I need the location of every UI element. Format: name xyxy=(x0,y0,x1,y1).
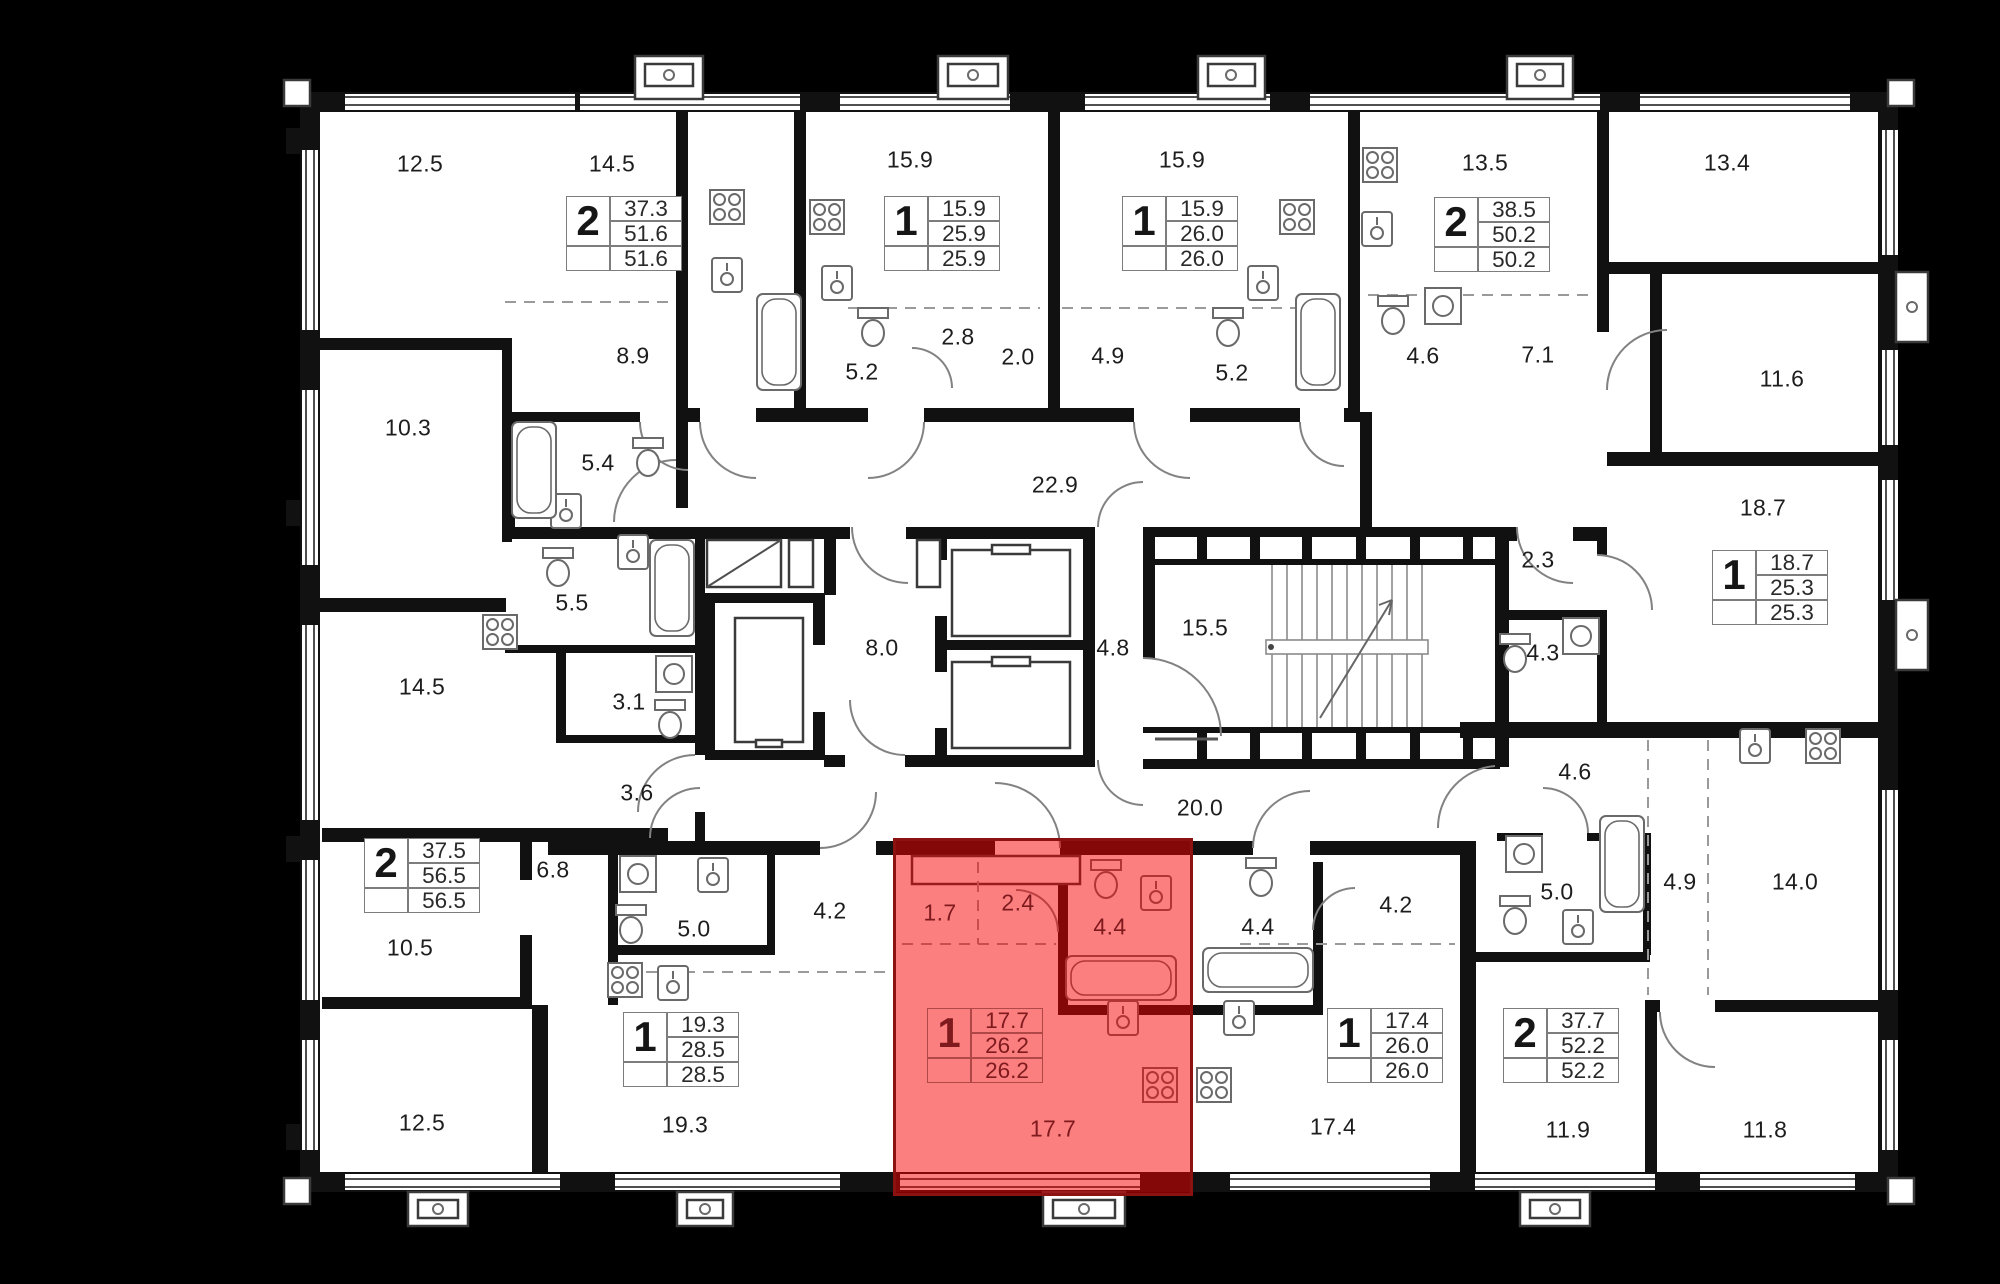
apartment-badge[interactable]: 2 38.5 50.2 50.2 xyxy=(1434,197,1550,272)
room-area-label: 4.9 xyxy=(1663,869,1696,896)
area-2: 25.3 xyxy=(1756,575,1828,600)
room-area-label-highlighted: 1.7 xyxy=(923,900,956,927)
area-2: 26.0 xyxy=(1166,221,1238,246)
room-area-label: 10.3 xyxy=(385,415,431,442)
room-area-label: 19.3 xyxy=(662,1112,708,1139)
room-area-label: 5.2 xyxy=(845,359,878,386)
area-2: 56.5 xyxy=(408,863,480,888)
total-area: 56.5 xyxy=(408,888,480,913)
room-area-label: 11.9 xyxy=(1546,1117,1591,1144)
apartment-badge[interactable]: 2 37.7 52.2 52.2 xyxy=(1503,1008,1619,1083)
floor-plan-canvas: 12.5 14.5 15.9 15.9 13.5 13.4 10.3 8.9 5… xyxy=(0,0,2000,1284)
living-area: 38.5 xyxy=(1478,197,1550,222)
living-area: 15.9 xyxy=(928,196,1000,221)
room-area-label: 14.5 xyxy=(589,151,635,178)
apartment-badge[interactable]: 1 19.3 28.5 28.5 xyxy=(623,1012,739,1087)
apartment-badge[interactable]: 1 18.7 25.3 25.3 xyxy=(1712,550,1828,625)
total-area: 26.0 xyxy=(1371,1058,1443,1083)
room-area-label: 14.5 xyxy=(399,674,445,701)
living-area: 17.7 xyxy=(971,1008,1043,1033)
room-area-label: 6.8 xyxy=(536,857,569,884)
total-area: 52.2 xyxy=(1547,1058,1619,1083)
room-area-label-highlighted: 17.7 xyxy=(1030,1116,1076,1143)
room-area-label: 5.4 xyxy=(581,450,614,477)
rooms-count: 1 xyxy=(1327,1008,1371,1058)
rooms-count: 1 xyxy=(927,1008,971,1058)
area-2: 51.6 xyxy=(610,221,682,246)
room-area-label: 15.5 xyxy=(1182,615,1228,642)
badge-empty-cell xyxy=(884,246,928,271)
apartment-badge[interactable]: 1 15.9 26.0 26.0 xyxy=(1122,196,1238,271)
room-area-label: 15.9 xyxy=(887,147,933,174)
apartment-badge[interactable]: 2 37.5 56.5 56.5 xyxy=(364,838,480,913)
room-area-label: 5.2 xyxy=(1215,360,1248,387)
apartment-badge[interactable]: 1 17.4 26.0 26.0 xyxy=(1327,1008,1443,1083)
total-area: 28.5 xyxy=(667,1062,739,1087)
area-2: 28.5 xyxy=(667,1037,739,1062)
room-area-label: 12.5 xyxy=(399,1110,445,1137)
room-area-label: 13.4 xyxy=(1704,150,1750,177)
room-area-label: 15.9 xyxy=(1159,147,1205,174)
room-area-label: 10.5 xyxy=(387,935,433,962)
total-area: 25.9 xyxy=(928,246,1000,271)
rooms-count: 2 xyxy=(364,838,408,888)
room-area-label: 12.5 xyxy=(397,151,443,178)
area-2: 25.9 xyxy=(928,221,1000,246)
room-area-label: 8.9 xyxy=(616,343,649,370)
room-area-label: 5.0 xyxy=(1540,879,1573,906)
room-area-label: 11.8 xyxy=(1743,1117,1788,1144)
total-area: 25.3 xyxy=(1756,600,1828,625)
area-2: 26.0 xyxy=(1371,1033,1443,1058)
apartment-badge[interactable]: 1 15.9 25.9 25.9 xyxy=(884,196,1000,271)
room-area-label: 7.1 xyxy=(1521,342,1554,369)
living-area: 37.5 xyxy=(408,838,480,863)
area-2: 26.2 xyxy=(971,1033,1043,1058)
room-area-label: 4.8 xyxy=(1096,635,1129,662)
rooms-count: 1 xyxy=(884,196,928,246)
room-area-label: 17.4 xyxy=(1310,1114,1356,1141)
room-area-label: 14.0 xyxy=(1772,869,1818,896)
room-area-label: 18.7 xyxy=(1740,495,1786,522)
room-area-label: 2.0 xyxy=(1001,344,1034,371)
room-area-label: 4.3 xyxy=(1526,640,1559,667)
badge-empty-cell xyxy=(364,888,408,913)
room-area-label: 8.0 xyxy=(865,635,898,662)
room-area-label: 4.2 xyxy=(1379,892,1412,919)
badge-empty-cell xyxy=(623,1062,667,1087)
room-area-label: 22.9 xyxy=(1032,472,1078,499)
living-area: 17.4 xyxy=(1371,1008,1443,1033)
area-2: 50.2 xyxy=(1478,222,1550,247)
rooms-count: 1 xyxy=(1122,196,1166,246)
room-area-label: 20.0 xyxy=(1177,795,1223,822)
rooms-count: 2 xyxy=(1503,1008,1547,1058)
badge-empty-cell xyxy=(1122,246,1166,271)
total-area: 26.2 xyxy=(971,1058,1043,1083)
living-area: 15.9 xyxy=(1166,196,1238,221)
rooms-count: 2 xyxy=(566,196,610,246)
rooms-count: 1 xyxy=(623,1012,667,1062)
room-area-label: 5.0 xyxy=(677,916,710,943)
room-area-label: 11.6 xyxy=(1760,366,1805,393)
rooms-count: 1 xyxy=(1712,550,1756,600)
room-area-label: 13.5 xyxy=(1462,150,1508,177)
room-area-label: 2.8 xyxy=(941,324,974,351)
room-area-label: 3.6 xyxy=(620,780,653,807)
badge-empty-cell xyxy=(1434,247,1478,272)
living-area: 37.7 xyxy=(1547,1008,1619,1033)
room-area-label: 5.5 xyxy=(555,590,588,617)
area-2: 52.2 xyxy=(1547,1033,1619,1058)
badge-empty-cell xyxy=(1327,1058,1371,1083)
total-area: 51.6 xyxy=(610,246,682,271)
living-area: 19.3 xyxy=(667,1012,739,1037)
room-area-label: 3.1 xyxy=(612,689,645,716)
apartment-badge-highlighted[interactable]: 1 17.7 26.2 26.2 xyxy=(927,1008,1043,1083)
total-area: 50.2 xyxy=(1478,247,1550,272)
badge-empty-cell xyxy=(566,246,610,271)
room-area-label: 4.9 xyxy=(1091,343,1124,370)
room-area-label: 4.6 xyxy=(1558,759,1591,786)
room-area-label-highlighted: 2.4 xyxy=(1001,890,1034,917)
room-area-label: 4.6 xyxy=(1406,343,1439,370)
badge-empty-cell xyxy=(1712,600,1756,625)
room-area-label-highlighted: 4.4 xyxy=(1093,914,1126,941)
badge-empty-cell xyxy=(1503,1058,1547,1083)
living-area: 18.7 xyxy=(1756,550,1828,575)
room-area-label: 2.3 xyxy=(1521,547,1554,574)
apartment-badge[interactable]: 2 37.3 51.6 51.6 xyxy=(566,196,682,271)
total-area: 26.0 xyxy=(1166,246,1238,271)
room-area-label: 4.4 xyxy=(1241,914,1274,941)
living-area: 37.3 xyxy=(610,196,682,221)
room-area-label: 4.2 xyxy=(813,898,846,925)
rooms-count: 2 xyxy=(1434,197,1478,247)
badge-empty-cell xyxy=(927,1058,971,1083)
